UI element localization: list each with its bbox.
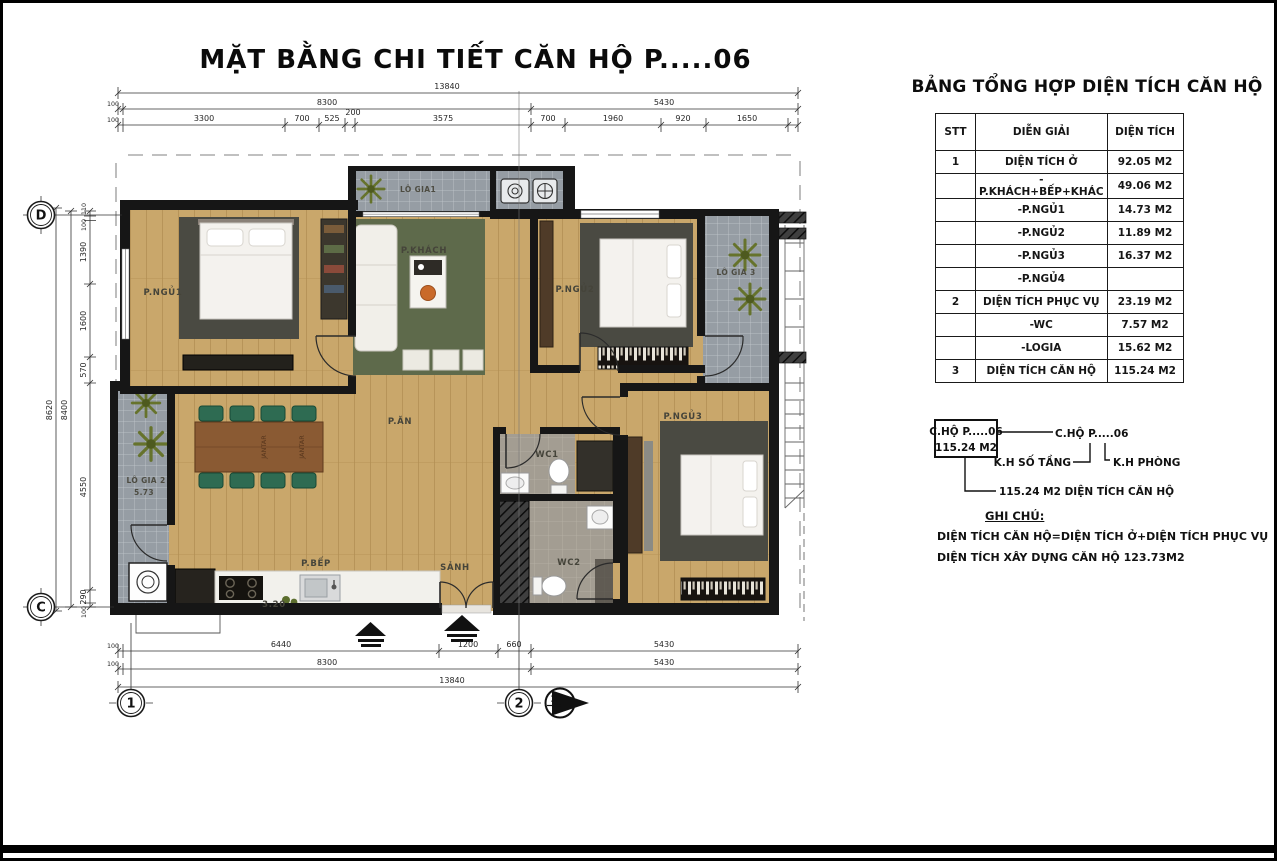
area-summary-table: STT DIỄN GIẢI DIỆN TÍCH 1DIỆN TÍCH Ở92.0…: [935, 113, 1184, 383]
laundry-cabinet: [577, 441, 613, 491]
svg-text:100: 100: [107, 643, 119, 650]
table-header-row: STT DIỄN GIẢI DIỆN TÍCH: [936, 114, 1184, 151]
svg-text:6440: 6440: [271, 640, 291, 649]
wardrobe-bedroom2: [540, 221, 553, 347]
svg-text:110: 110: [81, 203, 88, 215]
table-row: 3DIỆN TÍCH CĂN HỘ115.24 M2: [936, 360, 1184, 383]
washer-logia2: [129, 563, 167, 601]
table-row: 2DIỆN TÍCH PHỤC VỤ23.19 M2: [936, 291, 1184, 314]
bed-bedroom3: [681, 455, 763, 535]
table-texture-text: JANTAR: [260, 435, 268, 460]
key-ref-label: C.HỘ P.....06: [1055, 427, 1128, 440]
dim-labels-left: 8620 8400 110 100 1390 1600 570 4550 290…: [45, 203, 88, 618]
svg-text:5430: 5430: [654, 98, 674, 107]
svg-text:700: 700: [540, 114, 555, 123]
svg-text:3575: 3575: [433, 114, 453, 123]
key-area-label: 115.24 M2 DIỆN TÍCH CĂN HỘ: [999, 485, 1174, 498]
svg-text:13840: 13840: [434, 82, 459, 91]
kitchen-area-value: 3.20: [262, 600, 286, 610]
room-label-hall: SẢNH: [440, 561, 470, 573]
svg-text:D: D: [36, 209, 47, 224]
svg-text:1200: 1200: [458, 640, 478, 649]
table-row: -P.NGỦ114.73 M2: [936, 199, 1184, 222]
col-header-description: DIỄN GIẢI: [976, 114, 1108, 151]
grid-marker-2: 2: [497, 615, 541, 717]
dim-row-left: [50, 205, 96, 614]
svg-text:200: 200: [345, 108, 360, 117]
key-floor-label: K.H SỐ TẦNG: [994, 454, 1071, 469]
svg-text:2: 2: [551, 694, 558, 705]
svg-text:8300: 8300: [317, 658, 337, 667]
room-label-logia2: LÔ GIA 2: [126, 476, 165, 485]
key-box-unit-area: 115.24 M2: [935, 442, 997, 454]
table-row: -P.NGỦ211.89 M2: [936, 222, 1184, 245]
svg-text:100: 100: [81, 219, 88, 231]
dim-labels-bottom: 100 6440 1200 660 5430 100 8300 5430 138…: [107, 640, 674, 685]
table-row: -LOGIA15.62 M2: [936, 337, 1184, 360]
room-label-dining: P.ĂN: [388, 415, 412, 427]
svg-text:C: C: [36, 601, 46, 616]
washer-icons-tech-room: [501, 179, 557, 203]
room-label-logia1: LÔ GIA1: [400, 185, 436, 194]
notes-block: GHI CHÚ: DIỆN TÍCH CĂN HỘ=DIỆN TÍCH Ở+DI…: [901, 509, 1273, 565]
svg-text:1390: 1390: [79, 242, 88, 262]
svg-text:4550: 4550: [79, 477, 88, 497]
svg-text:1960: 1960: [603, 114, 623, 123]
svg-text:13840: 13840: [439, 676, 464, 685]
area-summary-panel: BẢNG TỔNG HỢP DIỆN TÍCH CĂN HỘ STT DIỄN …: [901, 77, 1273, 383]
key-room-label: K.H PHÒNG: [1113, 456, 1180, 469]
room-label-logia2-area: 5.73: [134, 488, 154, 497]
section-direction-marker: 2: [546, 689, 590, 718]
svg-text:100: 100: [107, 101, 119, 108]
notes-title: GHI CHÚ:: [985, 509, 1273, 523]
svg-text:1: 1: [126, 697, 135, 712]
col-header-area: DIỆN TÍCH: [1107, 114, 1183, 151]
bed-bedroom2: [600, 239, 686, 327]
svg-text:1650: 1650: [737, 114, 757, 123]
sheet-bottom-border: [0, 845, 1277, 853]
svg-text:2: 2: [514, 697, 523, 712]
dim-labels-top: 13840 100 8300 5430 100 3300 700 525 200…: [107, 82, 757, 124]
svg-text:570: 570: [79, 362, 88, 377]
dim-row-bottom: [115, 644, 801, 693]
notes-line-1: DIỆN TÍCH CĂN HỘ=DIỆN TÍCH Ở+DIỆN TÍCH P…: [937, 530, 1273, 544]
drawing-sheet: MẶT BẰNG CHI TIẾT CĂN HỘ P.....06: [0, 0, 1277, 861]
tv-cabinet-bedroom1: [183, 355, 293, 370]
svg-text:5430: 5430: [654, 640, 674, 649]
svg-text:8300: 8300: [317, 98, 337, 107]
table-row: -P.NGỦ4: [936, 268, 1184, 291]
table-row: -WC7.57 M2: [936, 314, 1184, 337]
piano-bedroom3: [681, 578, 765, 600]
table-row: -P.KHÁCH+BẾP+KHÁC49.06 M2: [936, 174, 1184, 199]
grid-marker-D: D: [23, 196, 122, 234]
notes-line-2: DIỆN TÍCH XÂY DỰNG CĂN HỘ 123.73M2: [937, 551, 1273, 565]
table-row: -P.NGỦ316.37 M2: [936, 245, 1184, 268]
svg-text:700: 700: [294, 114, 309, 123]
grid-marker-1: 1: [109, 623, 153, 717]
bed-bedroom1: [198, 219, 294, 319]
room-label-living: P.KHÁCH: [401, 244, 447, 256]
bookshelf-bedroom1: [321, 219, 347, 319]
room-label-wc1: WC1: [535, 450, 559, 460]
svg-text:8620: 8620: [45, 400, 54, 420]
shaft-hatched: [497, 501, 529, 607]
svg-text:3300: 3300: [194, 114, 214, 123]
svg-text:100: 100: [107, 661, 119, 668]
dim-row-top: [115, 87, 801, 132]
summary-title: BẢNG TỔNG HỢP DIỆN TÍCH CĂN HỘ: [901, 77, 1273, 97]
section-cut-marker: [355, 622, 386, 647]
entrance-marker: [444, 615, 480, 642]
grid-marker-C: C: [23, 588, 114, 626]
room-label-logia3: LÔ GIA 3: [716, 268, 755, 277]
svg-text:5430: 5430: [654, 658, 674, 667]
table-row: 1DIỆN TÍCH Ở92.05 M2: [936, 151, 1184, 174]
svg-text:100: 100: [107, 117, 119, 124]
svg-text:100: 100: [81, 606, 88, 618]
col-header-stt: STT: [936, 114, 976, 151]
svg-text:920: 920: [675, 114, 690, 123]
svg-text:1600: 1600: [79, 311, 88, 331]
svg-text:8400: 8400: [60, 400, 69, 420]
coffee-table: [410, 256, 446, 308]
key-diagram: C.HỘ P.....06 115.24 M2 C.HỘ P.....06 K.…: [929, 420, 1180, 498]
key-box-unit-code: C.HỘ P.....06: [929, 425, 1002, 438]
wardrobe-bedroom3: [627, 437, 642, 553]
svg-text:525: 525: [324, 114, 339, 123]
room-label-wc2: WC2: [557, 558, 581, 568]
curtain-bedroom3: [644, 441, 653, 551]
table-texture-text: JANTAR: [298, 435, 306, 460]
exterior-hatch-blocks: [779, 212, 806, 363]
svg-text:290: 290: [79, 589, 88, 604]
